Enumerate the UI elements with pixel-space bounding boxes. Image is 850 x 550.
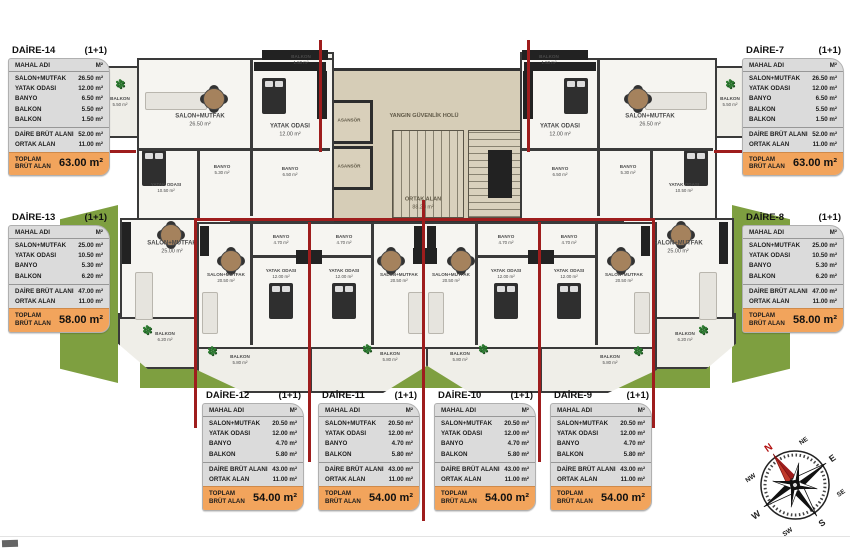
sofa bbox=[634, 292, 650, 334]
subtotal-name: DAİRE BRÜT ALANI bbox=[325, 465, 384, 475]
unit-table-title: DAİRE-7(1+1) bbox=[742, 45, 844, 58]
room-area: 5.50 m² bbox=[82, 105, 103, 115]
compass-ne-label: NE bbox=[798, 435, 810, 446]
room-area: 5.30 m² bbox=[82, 261, 103, 271]
room-area: 4.70 m² bbox=[508, 439, 529, 449]
room-area: 5.80 m² bbox=[276, 450, 297, 460]
room-label: BALKON5.50 m² bbox=[720, 96, 740, 108]
corner-logo-fragment bbox=[2, 540, 18, 548]
table-row: BANYO4.70 m² bbox=[435, 439, 535, 449]
bed bbox=[557, 283, 581, 319]
table-row: ORTAK ALAN11.00 m² bbox=[9, 140, 109, 150]
table-row: ORTAK ALAN11.00 m² bbox=[743, 140, 843, 150]
table-row: SALON+MUTFAK20.50 m² bbox=[319, 419, 419, 429]
table-row: BALKON5.80 m² bbox=[203, 450, 303, 460]
subtotal-name: DAİRE BRÜT ALANI bbox=[15, 130, 74, 140]
room-area: 5.80 m² bbox=[392, 450, 413, 460]
room-label: YATAK ODASI12.00 m² bbox=[266, 268, 297, 280]
subtotal-name: ORTAK ALAN bbox=[325, 475, 365, 485]
room-name: SALON+MUTFAK bbox=[557, 419, 608, 429]
unit-table-daire-12: DAİRE-12(1+1) MAHAL ADIM² SALON+MUTFAK20… bbox=[202, 390, 304, 511]
room-label: YATAK ODASI12.00 m² bbox=[540, 124, 580, 139]
plant-icon: ✽ bbox=[725, 77, 735, 91]
duct-shaft bbox=[528, 250, 554, 264]
room-name: YATAK ODASI bbox=[209, 429, 250, 439]
room-label: YATAK ODASI10.50 m² bbox=[151, 182, 182, 194]
table-row: BALKON5.80 m² bbox=[435, 450, 535, 460]
dining-table bbox=[220, 250, 242, 272]
room-name: BALKON bbox=[15, 105, 41, 115]
table-row: YATAK ODASI12.00 m² bbox=[435, 429, 535, 439]
subtotal-name: DAİRE BRÜT ALANI bbox=[15, 287, 74, 297]
floor-plan-canvas: YANGIN GÜVENLİK HOLÜ ASANSÖR ASANSÖR ORT… bbox=[0, 0, 850, 550]
table-row: ORTAK ALAN11.00 m² bbox=[551, 475, 651, 485]
room-label: YATAK ODASI12.00 m² bbox=[329, 268, 360, 280]
table-row: SALON+MUTFAK20.50 m² bbox=[435, 419, 535, 429]
table-row: DAİRE BRÜT ALANI43.00 m² bbox=[203, 465, 303, 475]
table-header: MAHAL ADIM² bbox=[203, 404, 303, 417]
table-row: BALKON5.80 m² bbox=[319, 450, 419, 460]
table-row: YATAK ODASI10.50 m² bbox=[9, 251, 109, 261]
subtotal-area: 47.00 m² bbox=[78, 287, 103, 297]
compass-sw-label: SW bbox=[782, 526, 795, 537]
unit-block-top-right bbox=[520, 58, 717, 222]
room-name: BALKON bbox=[441, 450, 467, 460]
table-row: BALKON6.20 m² bbox=[743, 272, 843, 282]
wall-segment bbox=[650, 148, 653, 218]
total-row: TOPLAM BRÜT ALAN63.00 m² bbox=[9, 152, 109, 176]
bed bbox=[269, 283, 293, 319]
table-row: YATAK ODASI12.00 m² bbox=[551, 429, 651, 439]
room-name: SALON+MUTFAK bbox=[209, 419, 260, 429]
room-area: 26.50 m² bbox=[78, 74, 103, 84]
wall-segment bbox=[197, 148, 200, 218]
kitchen-counter bbox=[254, 62, 326, 71]
subtotal-name: ORTAK ALAN bbox=[749, 140, 789, 150]
subtotal-name: DAİRE BRÜT ALANI bbox=[209, 465, 268, 475]
unit-table-daire-8: DAİRE-8(1+1) MAHAL ADIM² SALON+MUTFAK25.… bbox=[742, 212, 844, 333]
subtotal-area: 43.00 m² bbox=[272, 465, 297, 475]
room-name: SALON+MUTFAK bbox=[15, 241, 66, 251]
room-name: BALKON bbox=[15, 272, 41, 282]
table-row: SALON+MUTFAK20.50 m² bbox=[203, 419, 303, 429]
room-label: BANYO6.50 m² bbox=[282, 166, 299, 178]
dining-table bbox=[203, 88, 225, 110]
room-label: SALON+MUTFAK26.50 m² bbox=[175, 114, 225, 129]
room-name: BALKON bbox=[749, 105, 775, 115]
table-row: BALKON6.20 m² bbox=[9, 272, 109, 282]
table-row: DAİRE BRÜT ALANI47.00 m² bbox=[9, 287, 109, 297]
room-area: 5.30 m² bbox=[816, 261, 837, 271]
room-name: BALKON bbox=[325, 450, 351, 460]
sofa bbox=[428, 292, 444, 334]
plant-icon: ✽ bbox=[142, 323, 152, 337]
table-row: SALON+MUTFAK20.50 m² bbox=[551, 419, 651, 429]
room-name: SALON+MUTFAK bbox=[15, 74, 66, 84]
table-row: BALKON5.50 m² bbox=[9, 105, 109, 115]
fire-safety-hall-label: YANGIN GÜVENLİK HOLÜ bbox=[389, 113, 458, 121]
bed bbox=[332, 283, 356, 319]
subtotal-name: DAİRE BRÜT ALANI bbox=[749, 130, 808, 140]
table-row: ORTAK ALAN11.00 m² bbox=[435, 475, 535, 485]
room-label: BALKON5.80 m² bbox=[600, 354, 620, 366]
sofa bbox=[202, 292, 218, 334]
unit-table-daire-9: DAİRE-9(1+1) MAHAL ADIM² SALON+MUTFAK20.… bbox=[550, 390, 652, 511]
unit-table-title: DAİRE-13(1+1) bbox=[8, 212, 110, 225]
room-area: 4.70 m² bbox=[624, 439, 645, 449]
kitchen-counter bbox=[641, 226, 650, 256]
total-row: TOPLAM BRÜT ALAN58.00 m² bbox=[743, 308, 843, 332]
table-row: SALON+MUTFAK26.50 m² bbox=[743, 74, 843, 84]
room-area: 10.50 m² bbox=[812, 251, 837, 261]
room-area: 12.00 m² bbox=[620, 429, 645, 439]
table-row: BALKON1.50 m² bbox=[9, 115, 109, 125]
table-row: BALKON5.50 m² bbox=[743, 105, 843, 115]
room-area: 5.80 m² bbox=[508, 450, 529, 460]
room-name: BALKON bbox=[209, 450, 235, 460]
room-name: BANYO bbox=[325, 439, 347, 449]
room-label: SALON+MUTFAK25.00 m² bbox=[653, 241, 703, 256]
room-name: BANYO bbox=[209, 439, 231, 449]
kitchen-counter bbox=[719, 222, 728, 264]
room-area: 20.50 m² bbox=[388, 419, 413, 429]
table-row: DAİRE BRÜT ALANI47.00 m² bbox=[743, 287, 843, 297]
unit-table-title: DAİRE-8(1+1) bbox=[742, 212, 844, 225]
table-row: BANYO5.30 m² bbox=[9, 261, 109, 271]
unit-table-title: DAİRE-10(1+1) bbox=[434, 390, 536, 403]
unit-boundary-line bbox=[538, 222, 541, 462]
compass-rose-icon: N NE E SE S SW W NW bbox=[743, 433, 847, 537]
dining-table bbox=[627, 88, 649, 110]
table-row: ORTAK ALAN11.00 m² bbox=[319, 475, 419, 485]
bed bbox=[684, 150, 708, 186]
room-area: 6.50 m² bbox=[816, 94, 837, 104]
sofa bbox=[145, 92, 207, 110]
subtotal-name: DAİRE BRÜT ALANI bbox=[557, 465, 616, 475]
room-area: 20.50 m² bbox=[504, 419, 529, 429]
table-row: SALON+MUTFAK25.00 m² bbox=[743, 241, 843, 251]
subtotal-name: ORTAK ALAN bbox=[15, 297, 55, 307]
table-row: ORTAK ALAN11.00 m² bbox=[203, 475, 303, 485]
room-label: YATAK ODASI12.00 m² bbox=[270, 124, 310, 139]
room-name: SALON+MUTFAK bbox=[441, 419, 492, 429]
duct-shaft bbox=[413, 248, 437, 264]
room-area: 6.20 m² bbox=[82, 272, 103, 282]
room-name: YATAK ODASI bbox=[325, 429, 366, 439]
bed bbox=[262, 78, 286, 114]
footer-divider bbox=[0, 536, 850, 537]
room-area: 5.80 m² bbox=[624, 450, 645, 460]
table-row: DAİRE BRÜT ALANI43.00 m² bbox=[319, 465, 419, 475]
table-header: MAHAL ADIM² bbox=[319, 404, 419, 417]
table-row: YATAK ODASI12.00 m² bbox=[203, 429, 303, 439]
subtotal-area: 11.00 m² bbox=[505, 475, 529, 485]
room-name: BANYO bbox=[441, 439, 463, 449]
room-name: BANYO bbox=[749, 94, 771, 104]
room-name: YATAK ODASI bbox=[557, 429, 598, 439]
unit-table-title: DAİRE-11(1+1) bbox=[318, 390, 420, 403]
unit-table-daire-14: DAİRE-14(1+1) MAHAL ADIM² SALON+MUTFAK26… bbox=[8, 45, 110, 176]
wall-segment bbox=[520, 148, 713, 151]
room-area: 4.70 m² bbox=[392, 439, 413, 449]
room-label: BANYO4.70 m² bbox=[561, 234, 578, 246]
room-area: 12.00 m² bbox=[272, 429, 297, 439]
unit-boundary-line bbox=[195, 218, 655, 221]
table-row: BALKON1.50 m² bbox=[743, 115, 843, 125]
wall-segment bbox=[250, 60, 253, 216]
room-label: BANYO5.30 m² bbox=[214, 164, 231, 176]
table-row: BANYO6.50 m² bbox=[743, 94, 843, 104]
wall-segment bbox=[477, 255, 535, 258]
subtotal-area: 11.00 m² bbox=[813, 297, 837, 307]
unit-boundary-line bbox=[527, 40, 530, 152]
table-header: MAHAL ADIM² bbox=[551, 404, 651, 417]
subtotal-name: ORTAK ALAN bbox=[15, 140, 55, 150]
room-area: 12.00 m² bbox=[504, 429, 529, 439]
room-area: 4.70 m² bbox=[276, 439, 297, 449]
plant-icon: ✽ bbox=[207, 344, 217, 358]
room-label: BALKON1.50 m² bbox=[539, 54, 559, 66]
compass-n-label: N bbox=[763, 442, 775, 455]
table-row: YATAK ODASI10.50 m² bbox=[743, 251, 843, 261]
subtotal-name: ORTAK ALAN bbox=[557, 475, 597, 485]
room-label: BALKON5.80 m² bbox=[380, 351, 400, 363]
kitchen-counter bbox=[200, 226, 209, 256]
unit-block-top-left bbox=[137, 58, 334, 222]
total-row: TOPLAM BRÜT ALAN54.00 m² bbox=[435, 486, 535, 510]
room-label: BANYO4.70 m² bbox=[498, 234, 515, 246]
room-area: 1.50 m² bbox=[82, 115, 103, 125]
compass-s-label: S bbox=[817, 517, 828, 529]
room-label: BANYO6.50 m² bbox=[552, 166, 569, 178]
kitchen-counter bbox=[122, 222, 131, 264]
subtotal-area: 11.00 m² bbox=[389, 475, 413, 485]
table-row: SALON+MUTFAK25.00 m² bbox=[9, 241, 109, 251]
room-label: YATAK ODASI12.00 m² bbox=[491, 268, 522, 280]
sofa bbox=[135, 272, 153, 320]
room-name: BANYO bbox=[749, 261, 771, 271]
table-row: ORTAK ALAN11.00 m² bbox=[9, 297, 109, 307]
unit-table-title: DAİRE-9(1+1) bbox=[550, 390, 652, 403]
table-row: BALKON5.80 m² bbox=[551, 450, 651, 460]
wall-segment bbox=[475, 222, 478, 345]
total-row: TOPLAM BRÜT ALAN58.00 m² bbox=[9, 308, 109, 332]
subtotal-area: 43.00 m² bbox=[388, 465, 413, 475]
wall-segment bbox=[137, 148, 330, 151]
room-area: 12.00 m² bbox=[388, 429, 413, 439]
subtotal-name: DAİRE BRÜT ALANI bbox=[749, 287, 808, 297]
unit-boundary-line bbox=[422, 200, 425, 521]
subtotal-name: ORTAK ALAN bbox=[749, 297, 789, 307]
compass-nw-label: NW bbox=[744, 472, 758, 484]
subtotal-area: 11.00 m² bbox=[79, 140, 103, 150]
table-row: ORTAK ALAN11.00 m² bbox=[743, 297, 843, 307]
total-row: TOPLAM BRÜT ALAN54.00 m² bbox=[319, 486, 419, 510]
dining-table bbox=[380, 250, 402, 272]
subtotal-area: 43.00 m² bbox=[504, 465, 529, 475]
table-row: BANYO4.70 m² bbox=[319, 439, 419, 449]
room-label: SALON+MUTFAK25.00 m² bbox=[147, 241, 197, 256]
plant-icon: ✽ bbox=[478, 342, 488, 356]
unit-table-daire-13: DAİRE-13(1+1) MAHAL ADIM² SALON+MUTFAK25… bbox=[8, 212, 110, 333]
room-name: YATAK ODASI bbox=[15, 84, 56, 94]
subtotal-area: 43.00 m² bbox=[620, 465, 645, 475]
table-header: MAHAL ADIM² bbox=[743, 59, 843, 72]
wall-segment bbox=[597, 60, 600, 216]
compass-se-label: SE bbox=[836, 488, 847, 499]
table-row: DAİRE BRÜT ALANI43.00 m² bbox=[551, 465, 651, 475]
room-label: BANYO4.70 m² bbox=[336, 234, 353, 246]
room-label: SALON+MUTFAK26.50 m² bbox=[625, 114, 675, 129]
sofa bbox=[699, 272, 717, 320]
unit-boundary-line bbox=[308, 222, 311, 462]
table-header: MAHAL ADIM² bbox=[743, 226, 843, 239]
room-name: SALON+MUTFAK bbox=[749, 74, 800, 84]
subtotal-area: 11.00 m² bbox=[813, 140, 837, 150]
subtotal-area: 11.00 m² bbox=[621, 475, 645, 485]
room-name: BANYO bbox=[15, 261, 37, 271]
room-name: YATAK ODASI bbox=[749, 84, 790, 94]
room-area: 12.00 m² bbox=[812, 84, 837, 94]
subtotal-name: DAİRE BRÜT ALANI bbox=[441, 465, 500, 475]
plant-icon: ✽ bbox=[633, 344, 643, 358]
subtotal-area: 47.00 m² bbox=[812, 287, 837, 297]
room-label: BALKON1.50 m² bbox=[291, 54, 311, 66]
subtotal-name: ORTAK ALAN bbox=[441, 475, 481, 485]
room-label: SALON+MUTFAK20.50 m² bbox=[432, 272, 470, 284]
room-name: YATAK ODASI bbox=[441, 429, 482, 439]
subtotal-area: 11.00 m² bbox=[273, 475, 297, 485]
subtotal-name: ORTAK ALAN bbox=[209, 475, 249, 485]
room-name: BALKON bbox=[557, 450, 583, 460]
table-header: MAHAL ADIM² bbox=[9, 59, 109, 72]
room-label: SALON+MUTFAK20.50 m² bbox=[207, 272, 245, 284]
room-name: BANYO bbox=[15, 94, 37, 104]
unit-boundary-line bbox=[194, 218, 197, 428]
dining-table bbox=[610, 250, 632, 272]
table-row: YATAK ODASI12.00 m² bbox=[743, 84, 843, 94]
room-label: SALON+MUTFAK20.50 m² bbox=[380, 272, 418, 284]
room-area: 6.50 m² bbox=[82, 94, 103, 104]
room-label: BALKON5.50 m² bbox=[110, 96, 130, 108]
compass-w-label: W bbox=[750, 508, 763, 521]
room-area: 25.00 m² bbox=[812, 241, 837, 251]
kitchen-counter bbox=[524, 62, 596, 71]
bed bbox=[494, 283, 518, 319]
unit-table-title: DAİRE-14(1+1) bbox=[8, 45, 110, 58]
table-row: SALON+MUTFAK26.50 m² bbox=[9, 74, 109, 84]
room-name: BALKON bbox=[749, 115, 775, 125]
subtotal-area: 52.00 m² bbox=[78, 130, 103, 140]
room-area: 10.50 m² bbox=[78, 251, 103, 261]
wall-segment bbox=[371, 222, 374, 345]
unit-boundary-line bbox=[652, 218, 655, 428]
room-area: 1.50 m² bbox=[816, 115, 837, 125]
plant-icon: ✽ bbox=[115, 77, 125, 91]
room-label: BALKON5.80 m² bbox=[450, 351, 470, 363]
room-area: 5.50 m² bbox=[816, 105, 837, 115]
stair-landing bbox=[488, 150, 512, 198]
room-label: BALKON5.80 m² bbox=[230, 354, 250, 366]
table-row: YATAK ODASI12.00 m² bbox=[9, 84, 109, 94]
elevator-label: ASANSÖR bbox=[338, 118, 361, 123]
table-row: BANYO5.30 m² bbox=[743, 261, 843, 271]
unit-table-daire-7: DAİRE-7(1+1) MAHAL ADIM² SALON+MUTFAK26.… bbox=[742, 45, 844, 176]
bed bbox=[142, 150, 166, 186]
room-label: SALON+MUTFAK20.50 m² bbox=[605, 272, 643, 284]
room-label: YATAK ODASI10.50 m² bbox=[669, 182, 700, 194]
table-header: MAHAL ADIM² bbox=[9, 226, 109, 239]
wall-segment bbox=[250, 222, 253, 345]
table-row: DAİRE BRÜT ALANI52.00 m² bbox=[743, 130, 843, 140]
room-area: 25.00 m² bbox=[78, 241, 103, 251]
room-area: 20.50 m² bbox=[272, 419, 297, 429]
room-label: BANYO5.30 m² bbox=[620, 164, 637, 176]
table-row: BANYO6.50 m² bbox=[9, 94, 109, 104]
table-row: BANYO4.70 m² bbox=[551, 439, 651, 449]
table-row: DAİRE BRÜT ALANI43.00 m² bbox=[435, 465, 535, 475]
room-name: SALON+MUTFAK bbox=[325, 419, 376, 429]
unit-table-daire-11: DAİRE-11(1+1) MAHAL ADIM² SALON+MUTFAK20… bbox=[318, 390, 420, 511]
elevator-label: ASANSÖR bbox=[338, 164, 361, 169]
total-row: TOPLAM BRÜT ALAN54.00 m² bbox=[203, 486, 303, 510]
subtotal-area: 11.00 m² bbox=[79, 297, 103, 307]
room-label: YATAK ODASI12.00 m² bbox=[554, 268, 585, 280]
room-name: BALKON bbox=[749, 272, 775, 282]
room-name: YATAK ODASI bbox=[15, 251, 56, 261]
dining-table bbox=[450, 250, 472, 272]
subtotal-area: 52.00 m² bbox=[812, 130, 837, 140]
room-label: BALKON6.20 m² bbox=[155, 331, 175, 343]
wall-segment bbox=[595, 222, 598, 345]
sofa bbox=[645, 92, 707, 110]
total-row: TOPLAM BRÜT ALAN54.00 m² bbox=[551, 486, 651, 510]
room-area: 12.00 m² bbox=[78, 84, 103, 94]
unit-table-title: DAİRE-12(1+1) bbox=[202, 390, 304, 403]
table-row: YATAK ODASI12.00 m² bbox=[319, 429, 419, 439]
unit-boundary-line bbox=[319, 40, 322, 152]
room-name: YATAK ODASI bbox=[749, 251, 790, 261]
plant-icon: ✽ bbox=[698, 323, 708, 337]
total-row: TOPLAM BRÜT ALAN63.00 m² bbox=[743, 152, 843, 176]
room-name: SALON+MUTFAK bbox=[749, 241, 800, 251]
room-label: BALKON6.20 m² bbox=[675, 331, 695, 343]
table-row: DAİRE BRÜT ALANI52.00 m² bbox=[9, 130, 109, 140]
room-area: 6.20 m² bbox=[816, 272, 837, 282]
unit-table-daire-10: DAİRE-10(1+1) MAHAL ADIM² SALON+MUTFAK20… bbox=[434, 390, 536, 511]
bed bbox=[564, 78, 588, 114]
room-area: 26.50 m² bbox=[812, 74, 837, 84]
room-name: BANYO bbox=[557, 439, 579, 449]
room-area: 20.50 m² bbox=[620, 419, 645, 429]
room-label: BANYO4.70 m² bbox=[273, 234, 290, 246]
compass-e-label: E bbox=[827, 452, 838, 464]
table-header: MAHAL ADIM² bbox=[435, 404, 535, 417]
room-name: BALKON bbox=[15, 115, 41, 125]
plant-icon: ✽ bbox=[362, 342, 372, 356]
table-row: BANYO4.70 m² bbox=[203, 439, 303, 449]
